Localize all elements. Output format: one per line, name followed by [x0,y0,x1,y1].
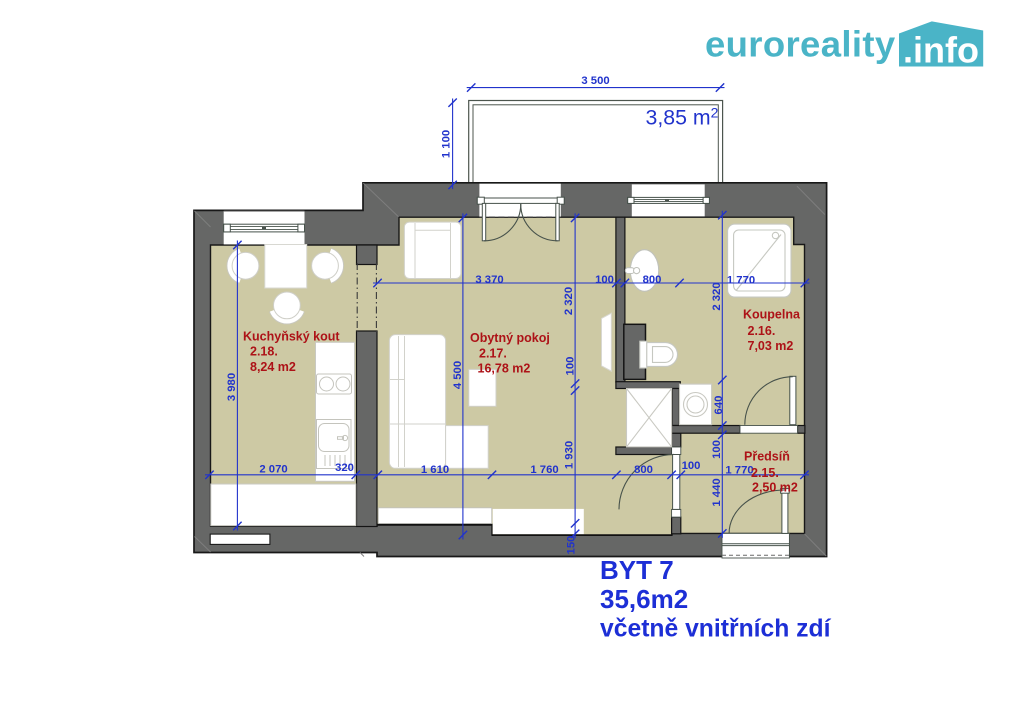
svg-text:3,85 m2: 3,85 m2 [646,105,719,130]
svg-text:Koupelna: Koupelna [743,308,801,322]
svg-text:2.15.: 2.15. [751,466,779,480]
svg-text:35,6m2: 35,6m2 [600,584,688,614]
svg-text:Předsíň: Předsíň [744,449,790,463]
svg-text:1 100: 1 100 [441,130,453,158]
svg-text:800: 800 [643,274,662,286]
svg-text:2,50 m2: 2,50 m2 [752,481,798,495]
svg-text:BYT 7: BYT 7 [600,555,674,585]
svg-text:320: 320 [335,462,354,474]
svg-text:1 610: 1 610 [421,464,449,476]
svg-text:1 760: 1 760 [530,464,558,476]
svg-text:800: 800 [634,464,653,476]
svg-text:euroreality: euroreality [705,24,896,65]
svg-text:150: 150 [566,536,578,555]
svg-text:1 770: 1 770 [725,464,753,476]
svg-text:2.18.: 2.18. [250,345,278,359]
svg-text:7,03 m2: 7,03 m2 [748,339,794,353]
svg-text:2.16.: 2.16. [748,324,776,338]
svg-text:2 320: 2 320 [711,282,723,310]
svg-text:16,78 m2: 16,78 m2 [478,362,531,376]
svg-text:.info: .info [903,30,979,71]
svg-text:Kuchyňský kout: Kuchyňský kout [243,330,340,344]
svg-text:100: 100 [565,357,577,376]
svg-text:100: 100 [682,460,701,472]
svg-text:640: 640 [713,396,725,415]
svg-text:2 320: 2 320 [563,287,575,315]
svg-text:100: 100 [711,440,723,459]
svg-text:8,24 m2: 8,24 m2 [250,360,296,374]
svg-text:100: 100 [595,274,614,286]
svg-text:1 770: 1 770 [727,274,755,286]
svg-text:2 070: 2 070 [259,464,287,476]
svg-text:3 980: 3 980 [226,373,238,401]
svg-text:4 500: 4 500 [452,361,464,389]
svg-text:Obytný pokoj: Obytný pokoj [470,331,550,345]
svg-text:1 930: 1 930 [564,441,576,469]
svg-text:2.17.: 2.17. [479,346,507,360]
svg-text:3 370: 3 370 [475,274,503,286]
svg-text:1 440: 1 440 [711,478,723,506]
svg-text:3 500: 3 500 [581,75,609,87]
svg-text:včetně vnitřních zdí: včetně vnitřních zdí [600,616,832,643]
